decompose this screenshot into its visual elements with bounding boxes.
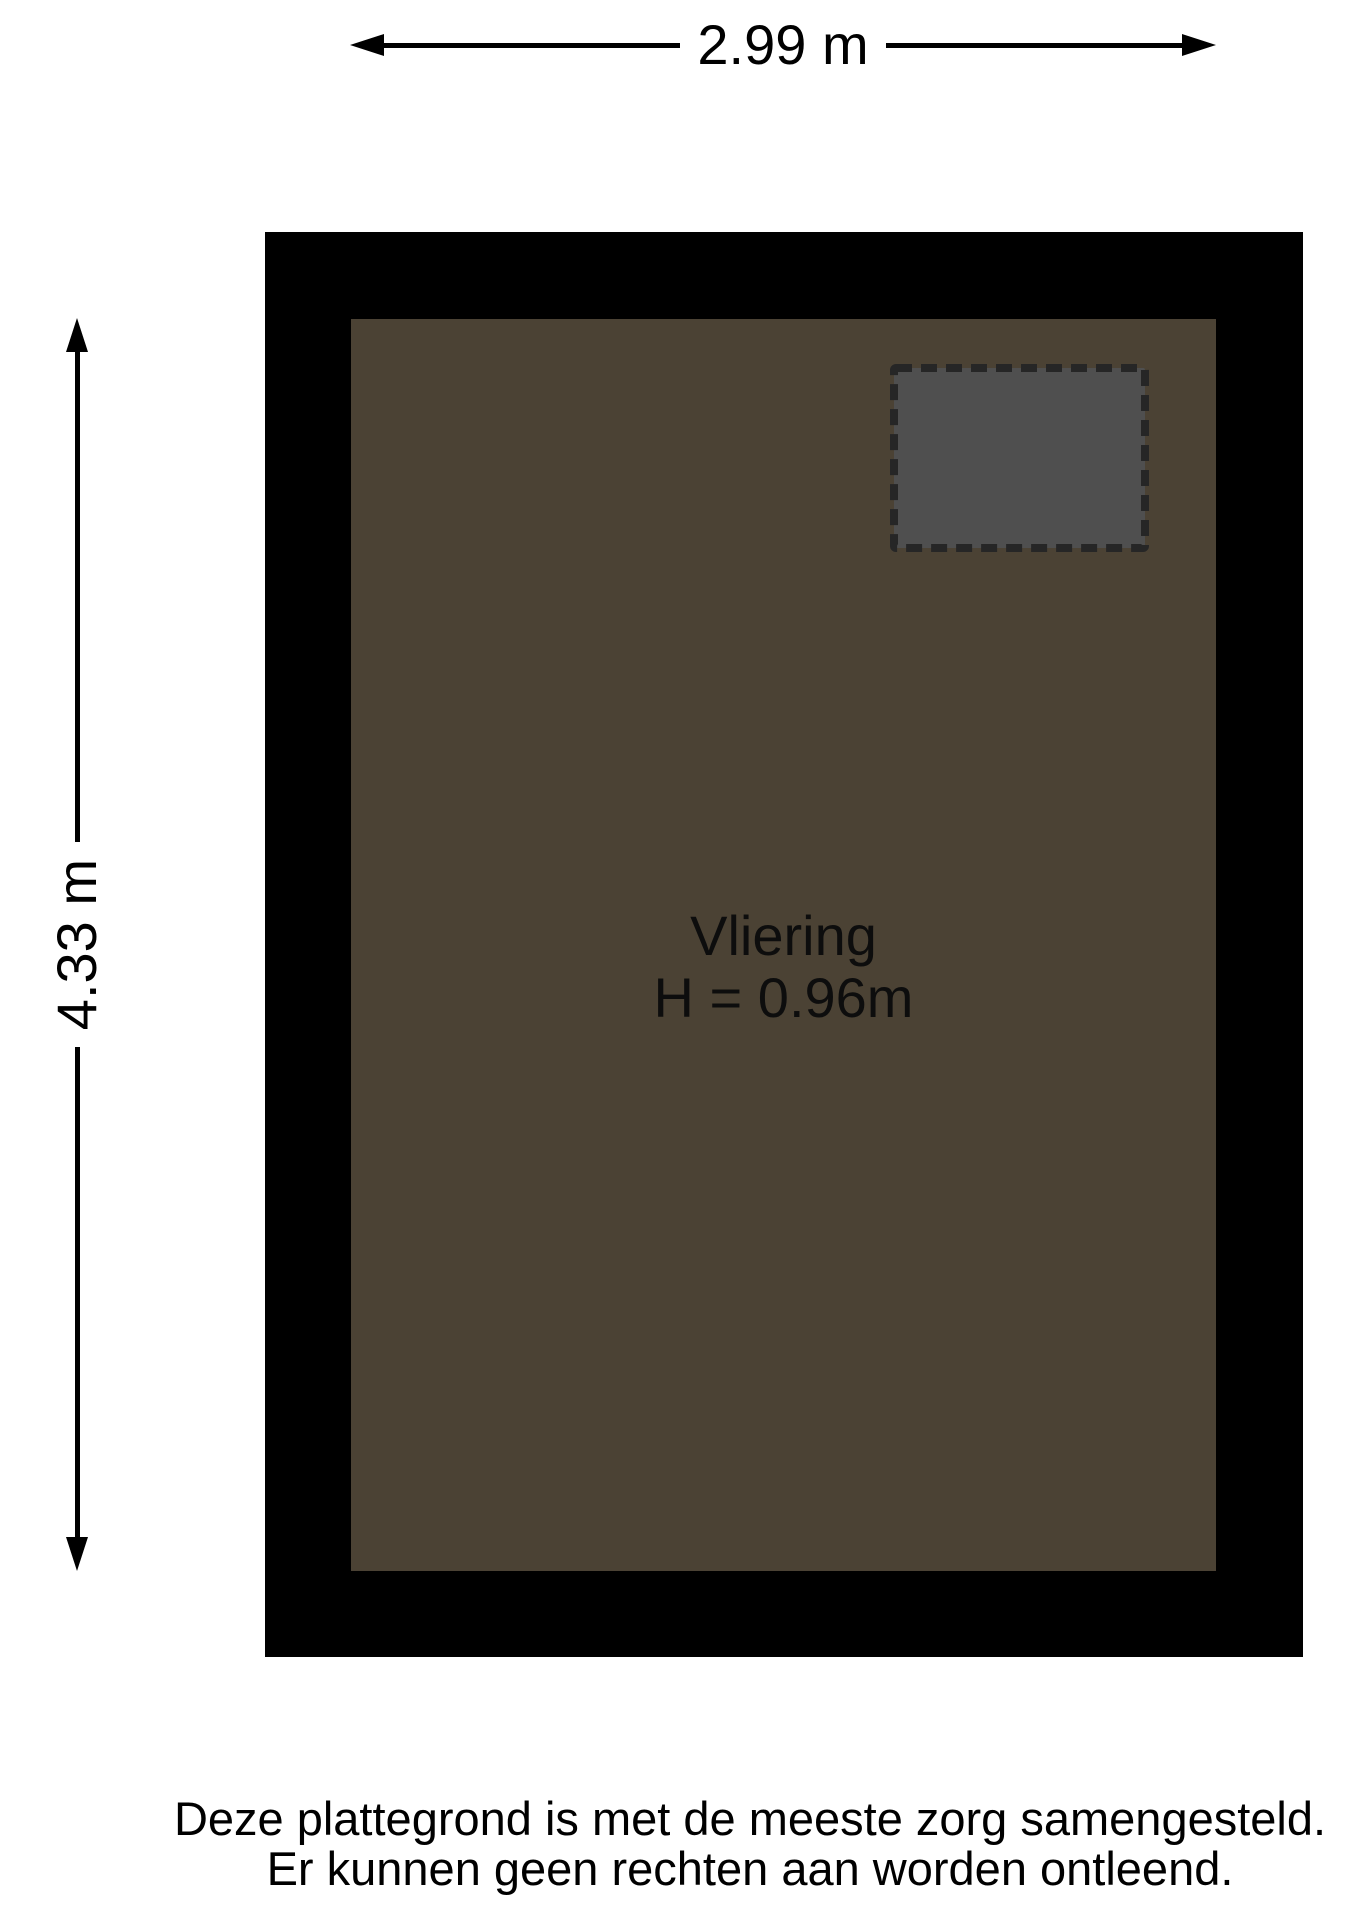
disclaimer-line1: Deze plattegrond is met de meeste zorg s… [92,1794,1358,1844]
arrow-up-icon [66,318,88,352]
floorplan-page: 2.99 m 4.33 m Vliering H = 0.96m Deze pl… [0,0,1358,1920]
dimension-line-left [384,43,680,48]
room-height-label: H = 0.96m [351,967,1216,1029]
outer-walls: Vliering H = 0.96m [265,232,1303,1657]
room-vliering: Vliering H = 0.96m [351,319,1216,1571]
arrow-right-icon [1182,34,1216,56]
arrow-down-icon [66,1537,88,1571]
dimension-line-right [886,43,1182,48]
dimension-line-top [75,352,80,842]
hatch-opening [890,364,1149,552]
arrow-left-icon [350,34,384,56]
width-dimension-label: 2.99 m [680,17,885,73]
disclaimer: Deze plattegrond is met de meeste zorg s… [92,1794,1358,1894]
height-dimension-label: 4.33 m [49,842,105,1047]
height-dimension: 4.33 m [63,318,91,1571]
dimension-line-bottom [75,1047,80,1537]
room-label: Vliering H = 0.96m [351,905,1216,1029]
room-name: Vliering [351,905,1216,967]
width-dimension: 2.99 m [350,31,1216,59]
disclaimer-line2: Er kunnen geen rechten aan worden ontlee… [92,1844,1358,1894]
